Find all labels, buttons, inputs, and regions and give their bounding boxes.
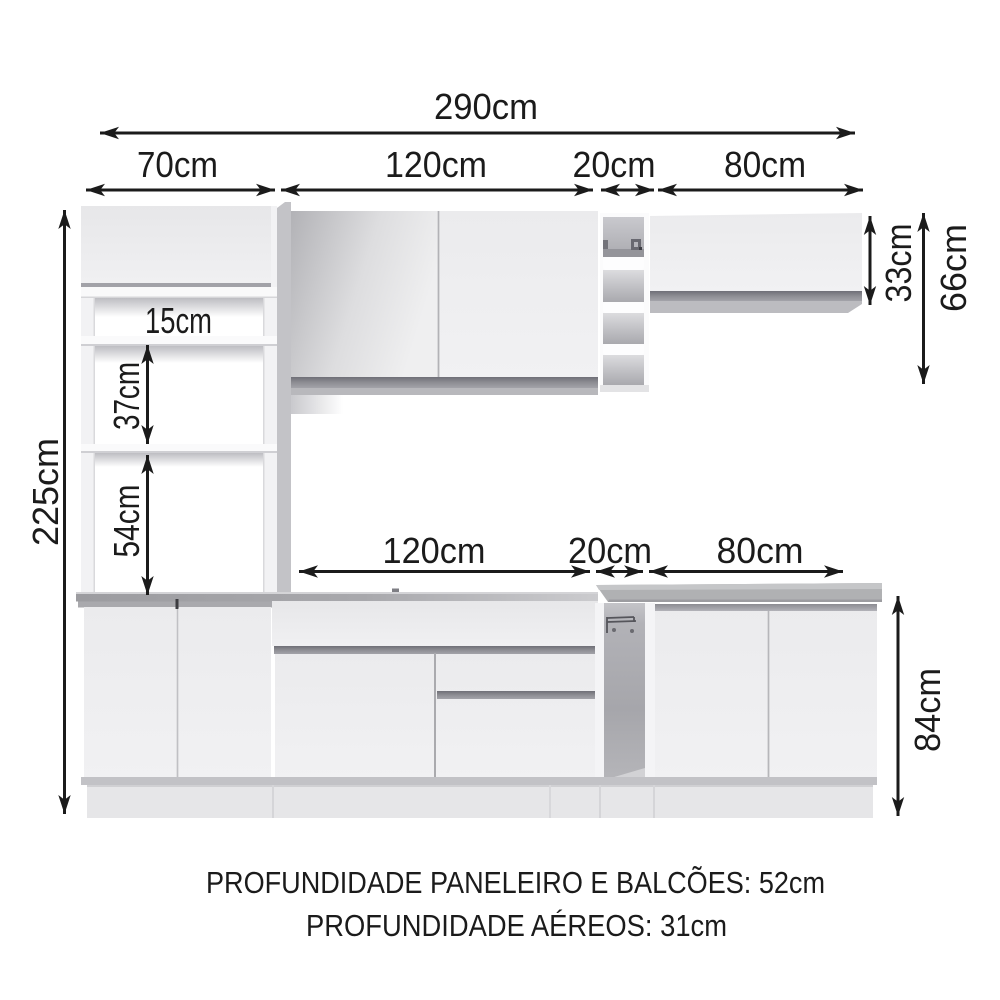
svg-text:54cm: 54cm	[106, 485, 147, 558]
svg-text:120cm: 120cm	[385, 144, 487, 185]
svg-text:290cm: 290cm	[434, 86, 538, 127]
svg-text:15cm: 15cm	[145, 300, 212, 341]
svg-text:66cm: 66cm	[933, 224, 974, 312]
svg-text:80cm: 80cm	[724, 144, 806, 185]
svg-text:33cm: 33cm	[878, 224, 919, 303]
svg-text:70cm: 70cm	[137, 144, 218, 185]
svg-text:37cm: 37cm	[106, 362, 147, 430]
svg-text:PROFUNDIDADE AÉREOS: 31cm: PROFUNDIDADE AÉREOS: 31cm	[306, 908, 727, 943]
svg-text:20cm: 20cm	[573, 144, 656, 185]
svg-text:20cm: 20cm	[568, 530, 652, 571]
svg-text:120cm: 120cm	[383, 530, 486, 571]
svg-text:84cm: 84cm	[907, 668, 948, 752]
svg-text:80cm: 80cm	[717, 530, 804, 571]
svg-text:225cm: 225cm	[25, 438, 66, 546]
svg-text:PROFUNDIDADE PANELEIRO E BALCÕ: PROFUNDIDADE PANELEIRO E BALCÕES: 52cm	[206, 865, 825, 900]
